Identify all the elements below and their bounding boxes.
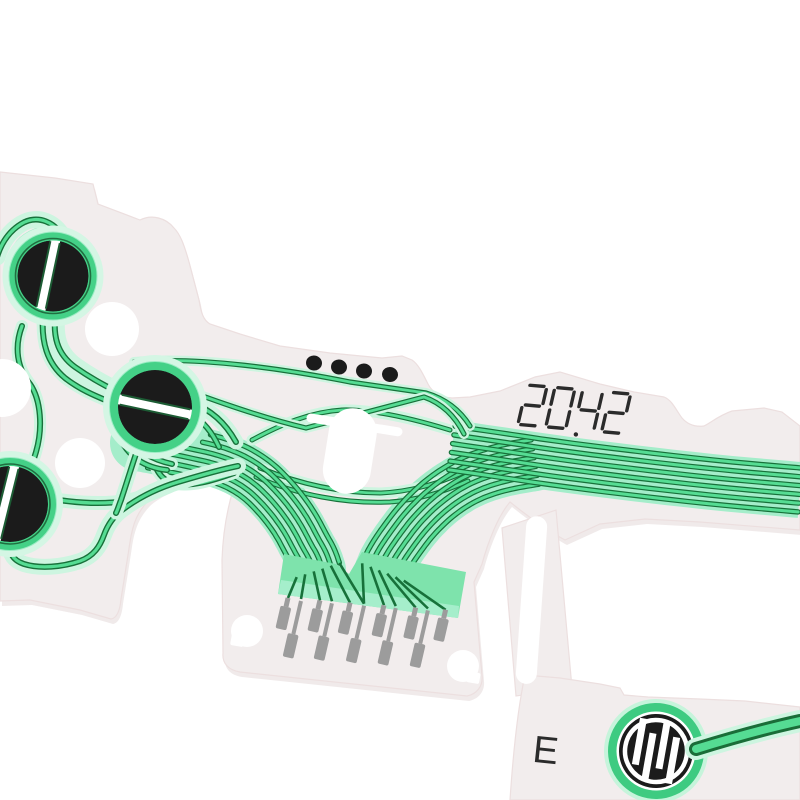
svg-text:E: E [531, 729, 561, 773]
